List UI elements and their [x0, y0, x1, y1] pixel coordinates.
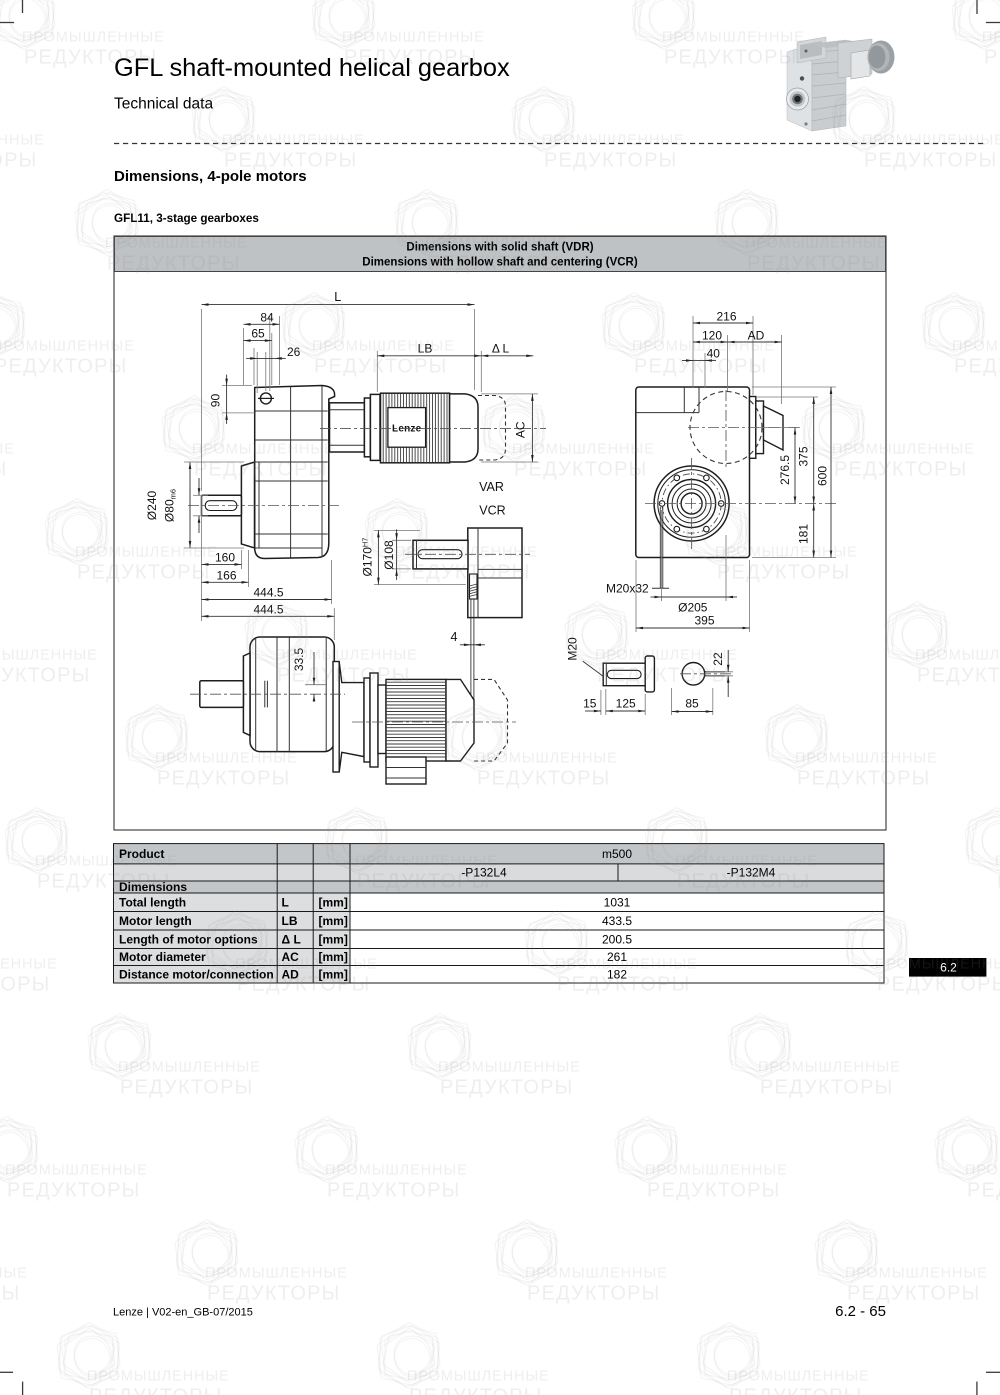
svg-text:ПРОМЫШЛЕННЫЕ: ПРОМЫШЛЕННЫЕ: [952, 339, 1000, 355]
svg-text:ПРОМЫШЛЕННЫЕ: ПРОМЫШЛЕННЫЕ: [222, 133, 365, 149]
svg-text:ПРОМЫШЛЕННЫЕ: ПРОМЫШЛЕННЫЕ: [395, 545, 538, 561]
svg-text:ПРОМЫШЛЕННЫЕ: ПРОМЫШЛЕННЫЕ: [632, 339, 775, 355]
svg-text:[mm]: [mm]: [319, 914, 348, 928]
svg-text:ПРОМЫШЛЕННЫЕ: ПРОМЫШЛЕННЫЕ: [342, 30, 485, 46]
svg-text:ПРОМЫШЛЕННЫЕ: ПРОМЫШЛЕННЫЕ: [155, 751, 298, 767]
svg-text:ПРОМЫШЛЕННЫЕ: ПРОМЫШЛЕННЫЕ: [982, 30, 1000, 46]
svg-text:444.5: 444.5: [253, 586, 283, 600]
svg-text:LB: LB: [282, 914, 298, 928]
svg-text:Δ L: Δ L: [282, 932, 301, 946]
svg-text:РЕДУКТОРЫ: РЕДУКТОРЫ: [427, 253, 561, 275]
svg-text:Length of motor options: Length of motor options: [119, 932, 258, 946]
svg-text:276.5: 276.5: [778, 455, 792, 485]
svg-text:ПРОМЫШЛЕННЫЕ: ПРОМЫШЛЕННЫЕ: [425, 236, 568, 252]
svg-text:200.5: 200.5: [602, 932, 632, 946]
svg-text:РЕДУКТОРЫ: РЕДУКТОРЫ: [967, 1180, 1000, 1202]
svg-text:ПРОМЫШЛЕННЫЕ: ПРОМЫШЛЕННЫЕ: [355, 854, 498, 870]
svg-text:Motor diameter: Motor diameter: [119, 950, 206, 964]
svg-text:РЕДУКТОРЫ: РЕДУКТОРЫ: [527, 1283, 661, 1305]
svg-text:РЕДУКТОРЫ: РЕДУКТОРЫ: [747, 253, 881, 275]
svg-text:РЕДУКТОРЫ: РЕДУКТОРЫ: [0, 974, 51, 996]
svg-text:85: 85: [685, 697, 699, 711]
svg-text:216: 216: [716, 310, 736, 324]
svg-text:РЕДУКТОРЫ: РЕДУКТОРЫ: [954, 356, 1000, 378]
svg-text:m500: m500: [602, 847, 632, 861]
svg-text:ПРОМЫШЛЕННЫЕ: ПРОМЫШЛЕННЫЕ: [192, 442, 335, 458]
svg-text:VCR: VCR: [479, 504, 505, 518]
svg-text:ПРОМЫШЛЕННЫЕ: ПРОМЫШЛЕННЫЕ: [118, 1060, 261, 1076]
svg-text:Ø80m6: Ø80m6: [163, 489, 178, 522]
svg-text:РЕДУКТОРЫ: РЕДУКТОРЫ: [24, 47, 158, 69]
svg-text:[mm]: [mm]: [319, 932, 348, 946]
svg-text:РЕДУКТОРЫ: РЕДУКТОРЫ: [0, 356, 128, 378]
svg-text:ПРОМЫШЛЕННЫЕ: ПРОМЫШЛЕННЫЕ: [915, 648, 1000, 664]
svg-text:ПРОМЫШЛЕННЫЕ: ПРОМЫШЛЕННЫЕ: [542, 133, 685, 149]
svg-text:РЕДУКТОРЫ: РЕДУКТОРЫ: [409, 1386, 543, 1395]
svg-text:РЕДУКТОРЫ: РЕДУКТОРЫ: [327, 1180, 461, 1202]
svg-text:ПРОМЫШЛЕННЫЕ: ПРОМЫШЛЕННЫЕ: [595, 648, 738, 664]
svg-text:Motor length: Motor length: [119, 914, 192, 928]
svg-text:РЕДУКТОРЫ: РЕДУКТОРЫ: [7, 1180, 141, 1202]
svg-text:РЕДУКТОРЫ: РЕДУКТОРЫ: [37, 871, 171, 893]
svg-text:65: 65: [251, 327, 265, 341]
svg-text:433.5: 433.5: [602, 914, 632, 928]
svg-text:ПРОМЫШЛЕННЫЕ: ПРОМЫШЛЕННЫЕ: [475, 751, 618, 767]
svg-text:РЕДУКТОРЫ: РЕДУКТОРЫ: [864, 150, 998, 172]
svg-text:РЕДУКТОРЫ: РЕДУКТОРЫ: [314, 356, 448, 378]
svg-text:Δ L: Δ L: [492, 342, 510, 356]
svg-text:ПРОМЫШЛЕННЫЕ: ПРОМЫШЛЕННЫЕ: [0, 1266, 28, 1282]
svg-text:РЕДУКТОРЫ: РЕДУКТОРЫ: [157, 768, 291, 790]
svg-text:160: 160: [215, 551, 235, 565]
svg-text:ПРОМЫШЛЕННЫЕ: ПРОМЫШЛЕННЫЕ: [555, 957, 698, 973]
svg-text:[mm]: [mm]: [319, 895, 348, 909]
svg-text:ПРОМЫШЛЕННЫЕ: ПРОМЫШЛЕННЫЕ: [235, 957, 378, 973]
svg-text:ПРОМЫШЛЕННЫЕ: ПРОМЫШЛЕННЫЕ: [438, 1060, 581, 1076]
svg-text:ПРОМЫШЛЕННЫЕ: ПРОМЫШЛЕННЫЕ: [0, 442, 15, 458]
svg-text:РЕДУКТОРЫ: РЕДУКТОРЫ: [194, 459, 328, 481]
svg-text:ПРОМЫШЛЕННЫЕ: ПРОМЫШЛЕННЫЕ: [862, 133, 1000, 149]
svg-text:Lenze | V02-en_GB-07/2015: Lenze | V02-en_GB-07/2015: [113, 1307, 253, 1319]
svg-text:РЕДУКТОРЫ: РЕДУКТОРЫ: [357, 871, 491, 893]
svg-text:125: 125: [616, 697, 636, 711]
svg-text:ПРОМЫШЛЕННЫЕ: ПРОМЫШЛЕННЫЕ: [675, 854, 818, 870]
svg-text:AC: AC: [514, 421, 528, 438]
svg-text:РЕДУКТОРЫ: РЕДУКТОРЫ: [847, 1283, 981, 1305]
svg-text:L: L: [282, 895, 289, 909]
svg-text:6.2 - 65: 6.2 - 65: [835, 1303, 886, 1320]
svg-text:ПРОМЫШЛЕННЫЕ: ПРОМЫШЛЕННЫЕ: [727, 1369, 870, 1385]
svg-text:РЕДУКТОРЫ: РЕДУКТОРЫ: [0, 459, 8, 481]
svg-text:ПРОМЫШЛЕННЫЕ: ПРОМЫШЛЕННЫЕ: [745, 236, 888, 252]
svg-text:ПРОМЫШЛЕННЫЕ: ПРОМЫШЛЕННЫЕ: [995, 854, 1000, 870]
svg-text:Total length: Total length: [119, 895, 186, 909]
svg-text:РЕДУКТОРЫ: РЕДУКТОРЫ: [717, 562, 851, 584]
svg-text:ПРОМЫШЛЕННЫЕ: ПРОМЫШЛЕННЫЕ: [5, 1163, 148, 1179]
svg-text:VAR: VAR: [479, 480, 504, 494]
svg-text:РЕДУКТОРЫ: РЕДУКТОРЫ: [797, 768, 931, 790]
svg-text:РЕДУКТОРЫ: РЕДУКТОРЫ: [634, 356, 768, 378]
svg-text:ПРОМЫШЛЕННЫЕ: ПРОМЫШЛЕННЫЕ: [0, 648, 98, 664]
svg-text:РЕДУКТОРЫ: РЕДУКТОРЫ: [544, 150, 678, 172]
svg-text:4: 4: [451, 630, 458, 644]
svg-text:РЕДУКТОРЫ: РЕДУКТОРЫ: [107, 253, 241, 275]
svg-text:РЕДУКТОРЫ: РЕДУКТОРЫ: [557, 974, 691, 996]
svg-text:ПРОМЫШЛЕННЫЕ: ПРОМЫШЛЕННЫЕ: [22, 30, 165, 46]
svg-text:Ø205: Ø205: [678, 601, 708, 615]
svg-text:ПРОМЫШЛЕННЫЕ: ПРОМЫШЛЕННЫЕ: [0, 133, 45, 149]
svg-text:РЕДУКТОРЫ: РЕДУКТОРЫ: [760, 1077, 894, 1099]
svg-text:375: 375: [797, 446, 811, 466]
svg-text:ПРОМЫШЛЕННЫЕ: ПРОМЫШЛЕННЫЕ: [275, 648, 418, 664]
svg-text:ПРОМЫШЛЕННЫЕ: ПРОМЫШЛЕННЫЕ: [645, 1163, 788, 1179]
svg-text:РЕДУКТОРЫ: РЕДУКТОРЫ: [984, 47, 1000, 69]
svg-text:РЕДУКТОРЫ: РЕДУКТОРЫ: [344, 47, 478, 69]
svg-text:РЕДУКТОРЫ: РЕДУКТОРЫ: [0, 665, 91, 687]
svg-text:РЕДУКТОРЫ: РЕДУКТОРЫ: [877, 974, 1000, 996]
svg-text:РЕДУКТОРЫ: РЕДУКТОРЫ: [647, 1180, 781, 1202]
svg-text:ПРОМЫШЛЕННЫЕ: ПРОМЫШЛЕННЫЕ: [105, 236, 248, 252]
svg-text:181: 181: [797, 524, 811, 544]
svg-text:ПРОМЫШЛЕННЫЕ: ПРОМЫШЛЕННЫЕ: [0, 957, 58, 973]
svg-text:РЕДУКТОРЫ: РЕДУКТОРЫ: [834, 459, 968, 481]
svg-text:600: 600: [815, 466, 829, 486]
svg-text:84: 84: [260, 311, 274, 325]
svg-text:РЕДУКТОРЫ: РЕДУКТОРЫ: [597, 665, 731, 687]
svg-text:ПРОМЫШЛЕННЫЕ: ПРОМЫШЛЕННЫЕ: [87, 1369, 230, 1385]
svg-text:ПРОМЫШЛЕННЫЕ: ПРОМЫШЛЕННЫЕ: [205, 1266, 348, 1282]
svg-text:РЕДУКТОРЫ: РЕДУКТОРЫ: [0, 150, 38, 172]
svg-text:РЕДУКТОРЫ: РЕДУКТОРЫ: [89, 1386, 223, 1395]
svg-text:ПРОМЫШЛЕННЫЕ: ПРОМЫШЛЕННЫЕ: [758, 1060, 901, 1076]
svg-text:РЕДУКТОРЫ: РЕДУКТОРЫ: [477, 768, 611, 790]
svg-text:ПРОМЫШЛЕННЫЕ: ПРОМЫШЛЕННЫЕ: [662, 30, 805, 46]
svg-text:РЕДУКТОРЫ: РЕДУКТОРЫ: [917, 665, 1000, 687]
svg-text:ПРОМЫШЛЕННЫЕ: ПРОМЫШЛЕННЫЕ: [35, 854, 178, 870]
svg-text:РЕДУКТОРЫ: РЕДУКТОРЫ: [397, 562, 531, 584]
svg-text:ПРОМЫШЛЕННЫЕ: ПРОМЫШЛЕННЫЕ: [875, 957, 1000, 973]
svg-text:РЕДУКТОРЫ: РЕДУКТОРЫ: [120, 1077, 254, 1099]
svg-text:ПРОМЫШЛЕННЫЕ: ПРОМЫШЛЕННЫЕ: [312, 339, 455, 355]
svg-text:M20x32: M20x32: [606, 582, 649, 596]
svg-text:РЕДУКТОРЫ: РЕДУКТОРЫ: [77, 562, 211, 584]
svg-text:РЕДУКТОРЫ: РЕДУКТОРЫ: [440, 1077, 574, 1099]
svg-text:ПРОМЫШЛЕННЫЕ: ПРОМЫШЛЕННЫЕ: [832, 442, 975, 458]
svg-text:РЕДУКТОРЫ: РЕДУКТОРЫ: [677, 871, 811, 893]
svg-text:РЕДУКТОРЫ: РЕДУКТОРЫ: [729, 1386, 863, 1395]
svg-text:ПРОМЫШЛЕННЫЕ: ПРОМЫШЛЕННЫЕ: [715, 545, 858, 561]
svg-text:ПРОМЫШЛЕННЫЕ: ПРОМЫШЛЕННЫЕ: [0, 339, 135, 355]
svg-text:РЕДУКТОРЫ: РЕДУКТОРЫ: [237, 974, 371, 996]
svg-text:166: 166: [216, 569, 236, 583]
svg-text:1031: 1031: [604, 895, 631, 909]
svg-text:ПРОМЫШЛЕННЫЕ: ПРОМЫШЛЕННЫЕ: [795, 751, 938, 767]
svg-text:РЕДУКТОРЫ: РЕДУКТОРЫ: [664, 47, 798, 69]
svg-text:РЕДУКТОРЫ: РЕДУКТОРЫ: [0, 1283, 21, 1305]
svg-text:РЕДУКТОРЫ: РЕДУКТОРЫ: [207, 1283, 341, 1305]
svg-text:ПРОМЫШЛЕННЫЕ: ПРОМЫШЛЕННЫЕ: [75, 545, 218, 561]
svg-text:15: 15: [583, 697, 597, 711]
svg-text:РЕДУКТОРЫ: РЕДУКТОРЫ: [224, 150, 358, 172]
svg-text:Ø240: Ø240: [145, 490, 159, 520]
svg-text:395: 395: [694, 614, 714, 628]
svg-text:РЕДУКТОРЫ: РЕДУКТОРЫ: [514, 459, 648, 481]
svg-text:РЕДУКТОРЫ: РЕДУКТОРЫ: [277, 665, 411, 687]
svg-text:ПРОМЫШЛЕННЫЕ: ПРОМЫШЛЕННЫЕ: [525, 1266, 668, 1282]
svg-text:ПРОМЫШЛЕННЫЕ: ПРОМЫШЛЕННЫЕ: [407, 1369, 550, 1385]
svg-text:ПРОМЫШЛЕННЫЕ: ПРОМЫШЛЕННЫЕ: [965, 1163, 1000, 1179]
svg-text:ПРОМЫШЛЕННЫЕ: ПРОМЫШЛЕННЫЕ: [845, 1266, 988, 1282]
svg-text:ПРОМЫШЛЕННЫЕ: ПРОМЫШЛЕННЫЕ: [512, 442, 655, 458]
svg-text:ПРОМЫШЛЕННЫЕ: ПРОМЫШЛЕННЫЕ: [325, 1163, 468, 1179]
